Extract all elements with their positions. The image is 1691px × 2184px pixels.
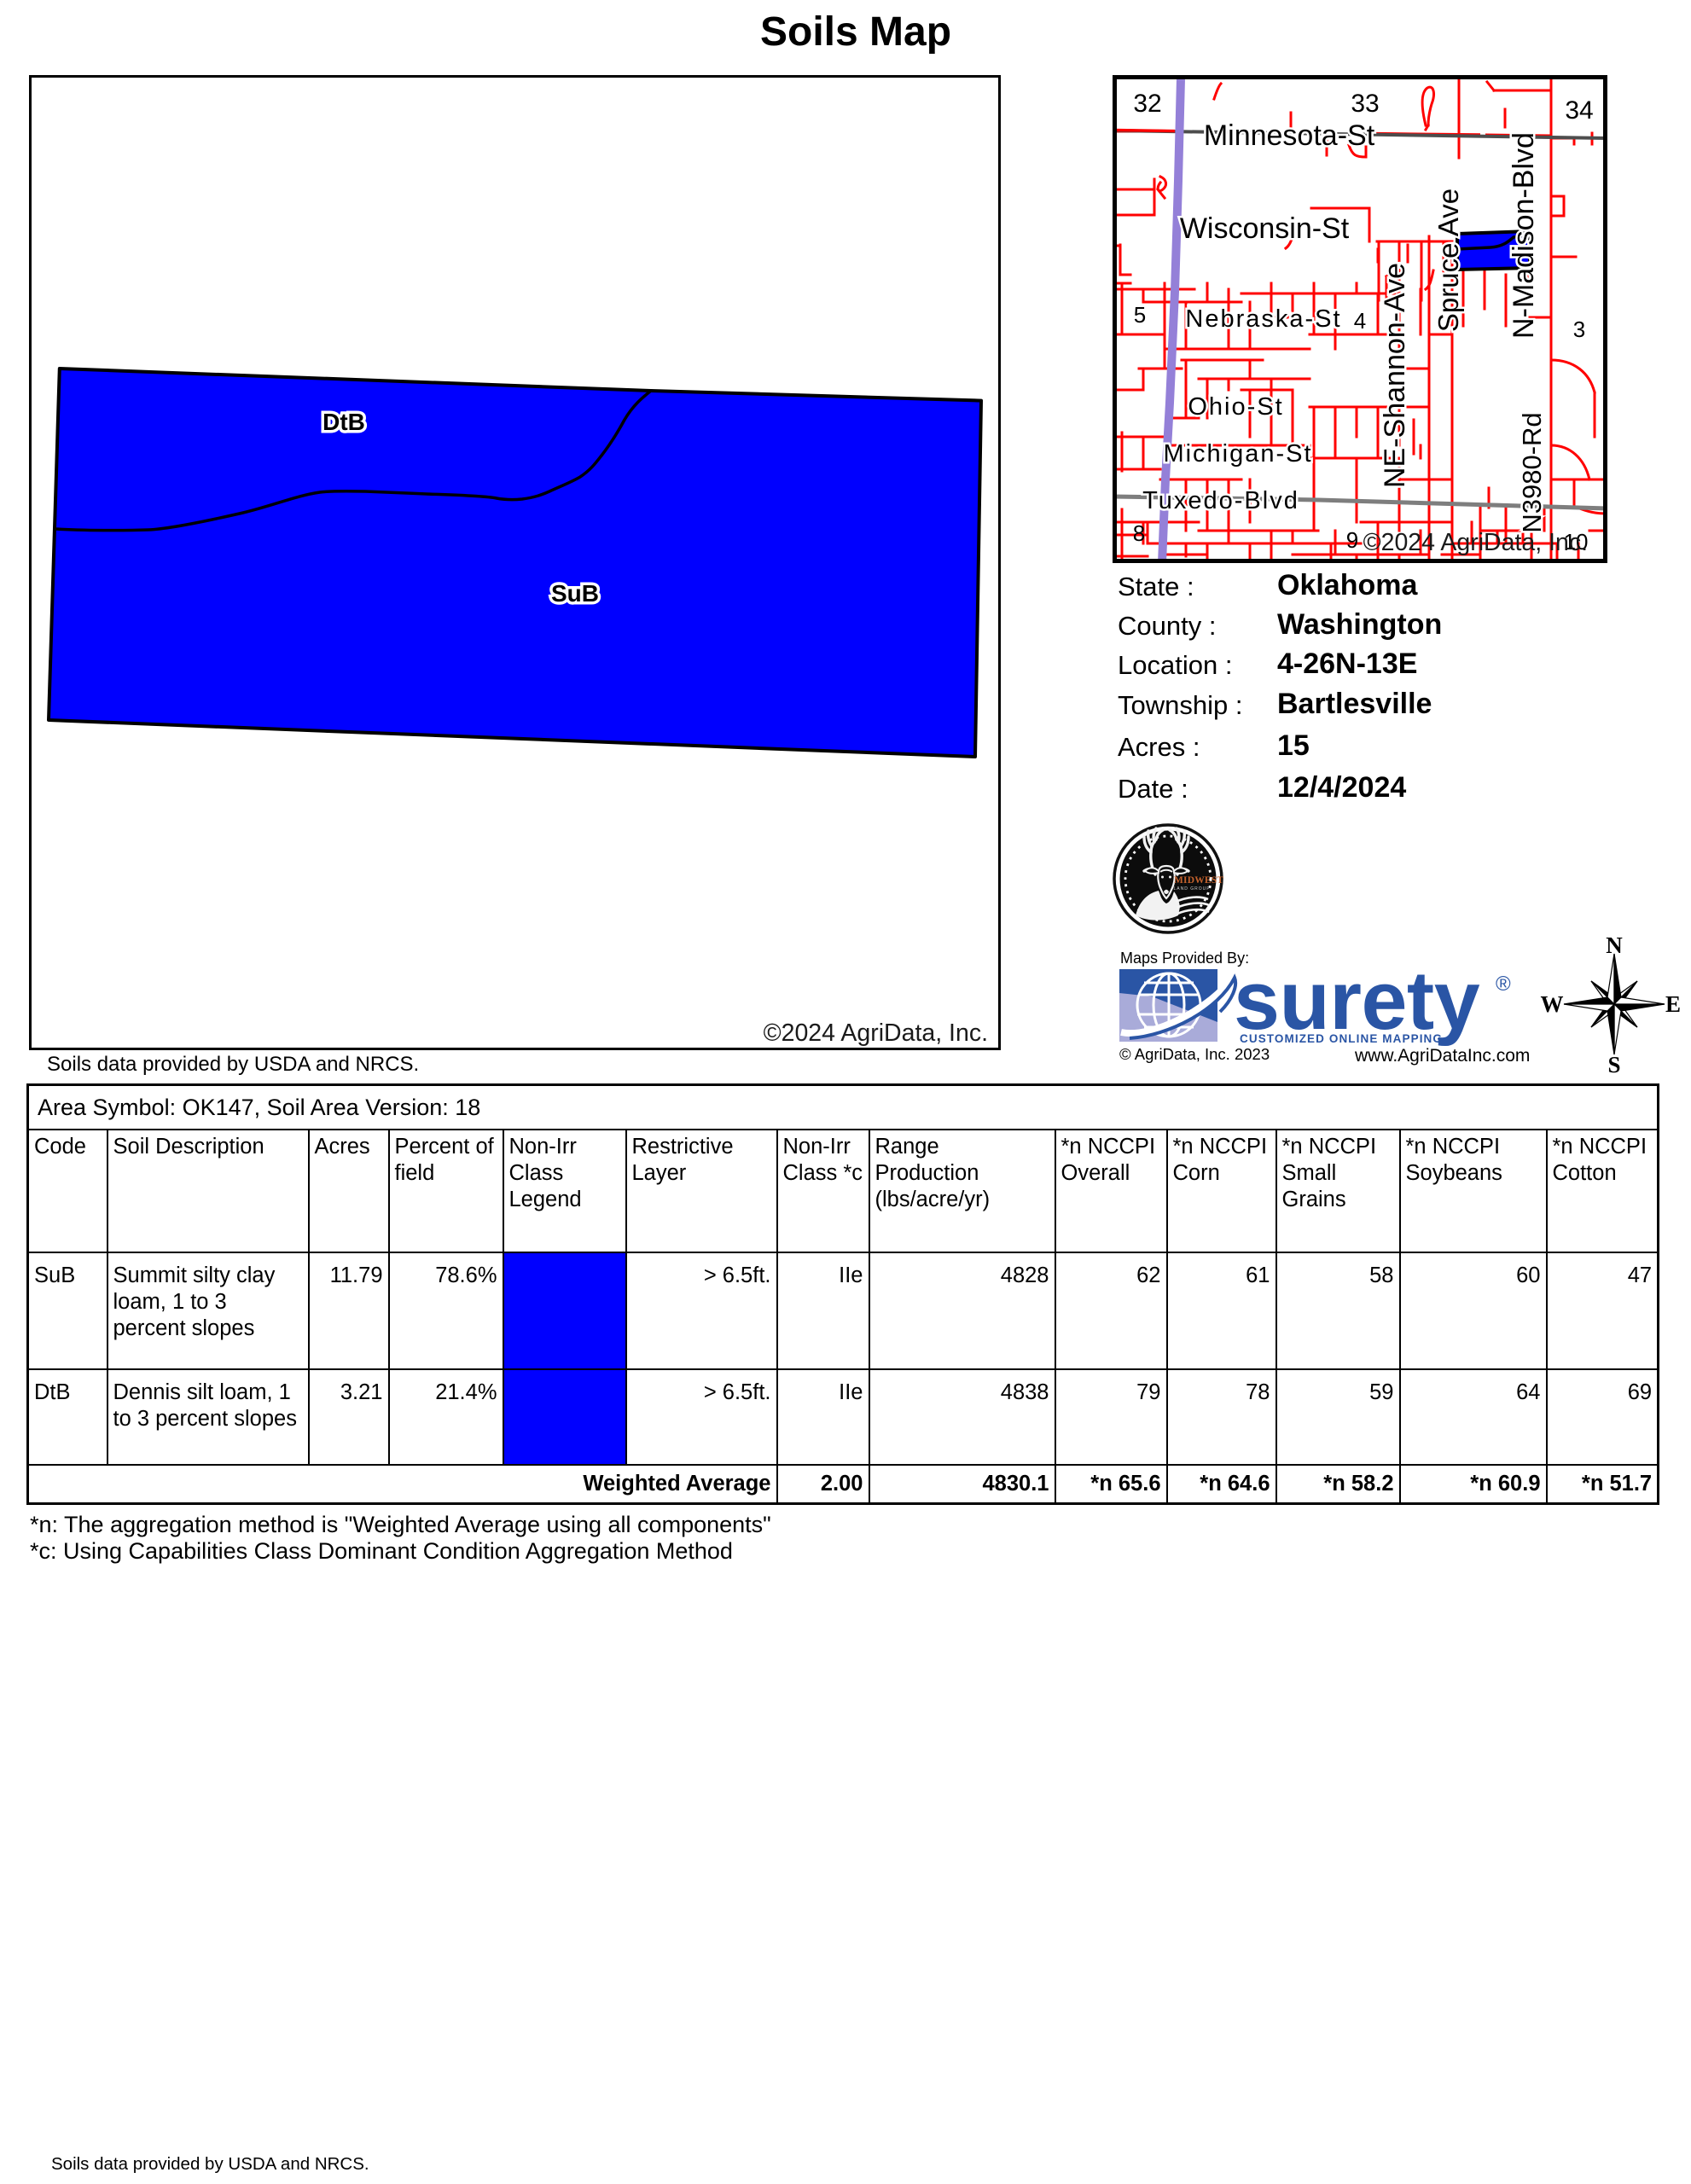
svg-text:MIDWEST: MIDWEST xyxy=(1174,875,1223,886)
svg-text:34: 34 xyxy=(1565,96,1593,125)
svg-text:Wisconsin-St: Wisconsin-St xyxy=(1180,212,1350,245)
svg-text:Tuxedo-Blvd: Tuxedo-Blvd xyxy=(1142,487,1299,514)
svg-text:NE-Shannon-Ave: NE-Shannon-Ave xyxy=(1379,263,1411,488)
svg-text:9: 9 xyxy=(1346,527,1358,553)
svg-text:Ohio-St: Ohio-St xyxy=(1188,393,1283,421)
svg-text:CUSTOMIZED ONLINE MAPPING: CUSTOMIZED ONLINE MAPPING xyxy=(1240,1032,1443,1045)
svg-text:©2024 AgriData, Inc.: ©2024 AgriData, Inc. xyxy=(764,1019,988,1047)
svg-text:N-Madison-Blvd: N-Madison-Blvd xyxy=(1508,132,1540,339)
svg-text:33: 33 xyxy=(1351,90,1379,118)
svg-text:4: 4 xyxy=(1354,308,1366,334)
svg-text:3: 3 xyxy=(1573,317,1585,342)
svg-text:©2024 AgriData, Inc.: ©2024 AgriData, Inc. xyxy=(1363,529,1588,556)
svg-text:8: 8 xyxy=(1133,520,1145,546)
svg-text:W: W xyxy=(1541,991,1564,1017)
svg-text:LAND GROUP: LAND GROUP xyxy=(1173,886,1210,892)
svg-text:5: 5 xyxy=(1134,302,1146,328)
svg-text:32: 32 xyxy=(1133,90,1161,118)
svg-text:Michigan-St: Michigan-St xyxy=(1163,440,1312,468)
svg-text:®: ® xyxy=(1496,973,1511,996)
svg-text:E: E xyxy=(1665,991,1681,1017)
svg-text:Minnesota-St: Minnesota-St xyxy=(1204,119,1375,152)
svg-text:SuB: SuB xyxy=(551,580,599,607)
svg-text:N: N xyxy=(1606,932,1623,958)
svg-text:N3980-Rd: N3980-Rd xyxy=(1517,412,1547,532)
svg-text:Nebraska-St: Nebraska-St xyxy=(1185,305,1341,333)
svg-text:Spruce Ave: Spruce Ave xyxy=(1432,189,1464,332)
svg-text:S: S xyxy=(1607,1052,1620,1077)
svg-text:DtB: DtB xyxy=(323,409,365,435)
